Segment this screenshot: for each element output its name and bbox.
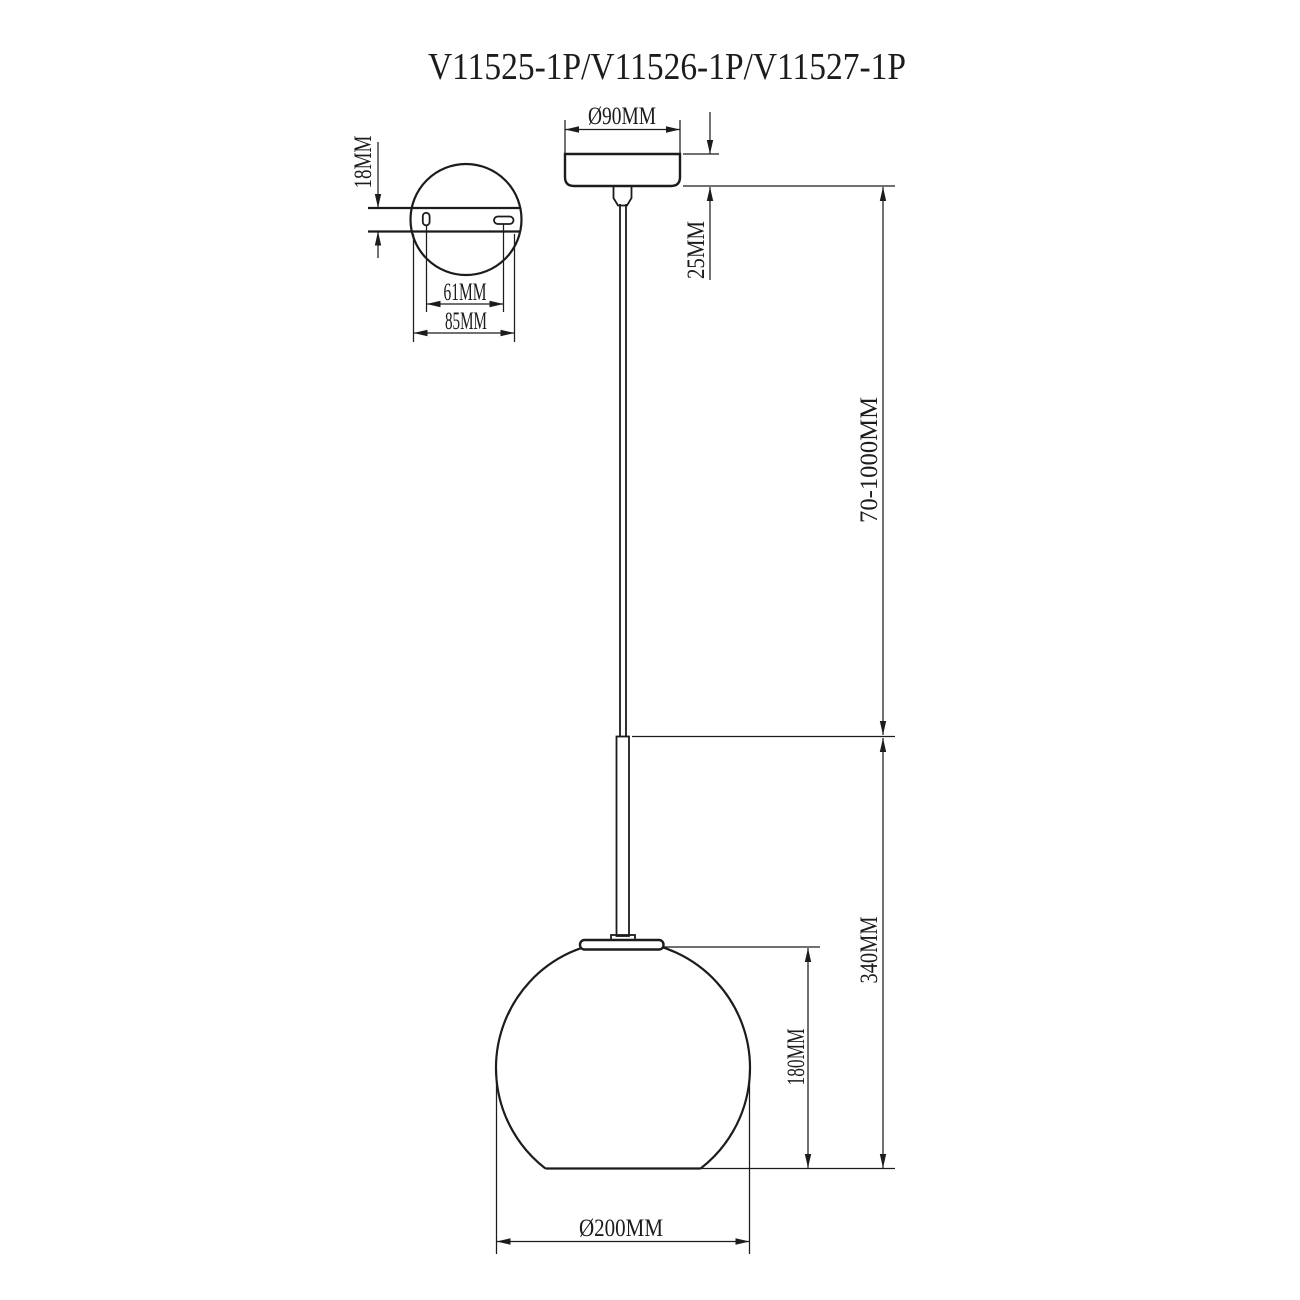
globe-shade	[496, 941, 750, 1169]
dim-canopy-height-label: 25MM	[683, 221, 710, 279]
technical-drawing: V11525-1P/V11526-1P/V11527-1P 18MM 61MM	[0, 0, 1300, 1300]
arrowhead	[805, 948, 811, 962]
arrowhead	[666, 126, 680, 132]
arrowhead	[707, 187, 713, 201]
dim-canopy-diameter-label: Ø90MM	[588, 103, 656, 130]
arrowhead	[736, 1238, 750, 1244]
arrowhead	[707, 140, 713, 154]
arrowhead	[501, 330, 515, 336]
ceiling-canopy	[565, 154, 680, 186]
arrowhead	[880, 1154, 886, 1168]
pendant-front-view: Ø90MM 25MM 70-1000MM	[496, 103, 895, 1254]
strain-relief	[614, 186, 632, 206]
dim-fixture-height: 340MM	[856, 738, 886, 1168]
shade-cap	[580, 940, 664, 950]
drawing-title: V11525-1P/V11526-1P/V11527-1P	[428, 46, 906, 88]
arrowhead	[880, 187, 886, 201]
arrowhead	[375, 232, 381, 246]
drawing-page: V11525-1P/V11526-1P/V11527-1P 18MM 61MM	[0, 0, 1300, 1300]
dim-suspension-length-label: 70-1000MM	[856, 397, 883, 523]
dim-plate-thickness: 18MM	[350, 136, 381, 259]
arrowhead	[880, 721, 886, 735]
arrowhead	[805, 1154, 811, 1168]
mounting-slot-left	[423, 213, 430, 226]
mounting-plate-top-view: 18MM 61MM 85MM	[350, 136, 522, 343]
dim-canopy-diameter: Ø90MM	[565, 103, 680, 155]
arrowhead	[565, 126, 579, 132]
arrowhead	[880, 738, 886, 752]
dim-shade-diameter: Ø200MM	[497, 1070, 750, 1254]
dim-shade-height-label: 180MM	[783, 1029, 810, 1086]
arrowhead	[375, 194, 381, 208]
dim-plate-width-label: 85MM	[445, 308, 487, 335]
dim-shade-diameter-label: Ø200MM	[579, 1215, 663, 1242]
stem-rod	[617, 737, 630, 937]
dim-plate-thickness-label: 18MM	[350, 136, 377, 189]
dim-canopy-height: 25MM	[683, 112, 719, 280]
arrowhead	[414, 330, 428, 336]
dim-shade-height: 180MM	[783, 948, 811, 1168]
arrowhead	[490, 301, 504, 307]
dim-hole-spacing-label: 61MM	[444, 279, 487, 306]
arrowhead	[497, 1238, 511, 1244]
dim-fixture-height-label: 340MM	[856, 917, 883, 984]
mounting-plate-circle	[411, 164, 522, 275]
dim-suspension-length: 70-1000MM	[856, 187, 886, 735]
arrowhead	[427, 301, 441, 307]
mounting-slot-right	[494, 217, 514, 225]
